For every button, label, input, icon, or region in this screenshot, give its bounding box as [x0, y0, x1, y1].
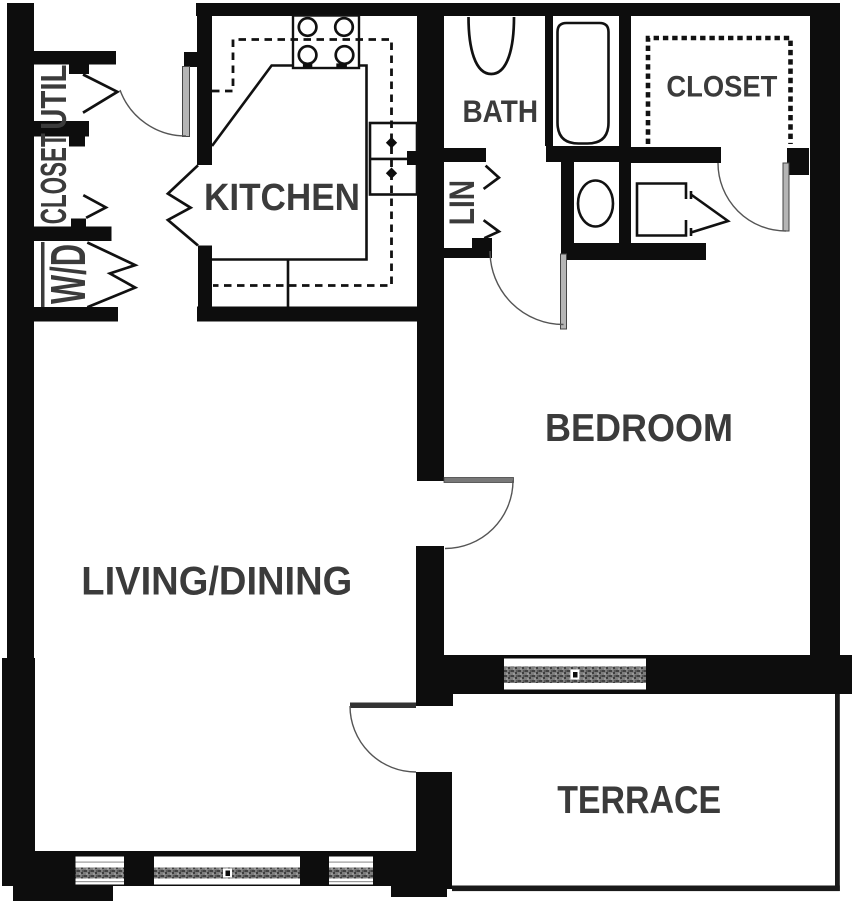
svg-text:BEDROOM: BEDROOM: [545, 407, 733, 450]
svg-text:UTIL: UTIL: [34, 65, 75, 130]
svg-text:W/D: W/D: [41, 244, 96, 304]
svg-text:CLOSET: CLOSET: [666, 70, 777, 103]
svg-text:KITCHEN: KITCHEN: [204, 177, 360, 219]
svg-text:BATH: BATH: [463, 93, 539, 129]
svg-text:TERRACE: TERRACE: [557, 779, 721, 822]
svg-text:CLOSET: CLOSET: [34, 133, 74, 224]
svg-text:LIVING/DINING: LIVING/DINING: [81, 560, 352, 604]
svg-text:LIN: LIN: [442, 180, 482, 225]
